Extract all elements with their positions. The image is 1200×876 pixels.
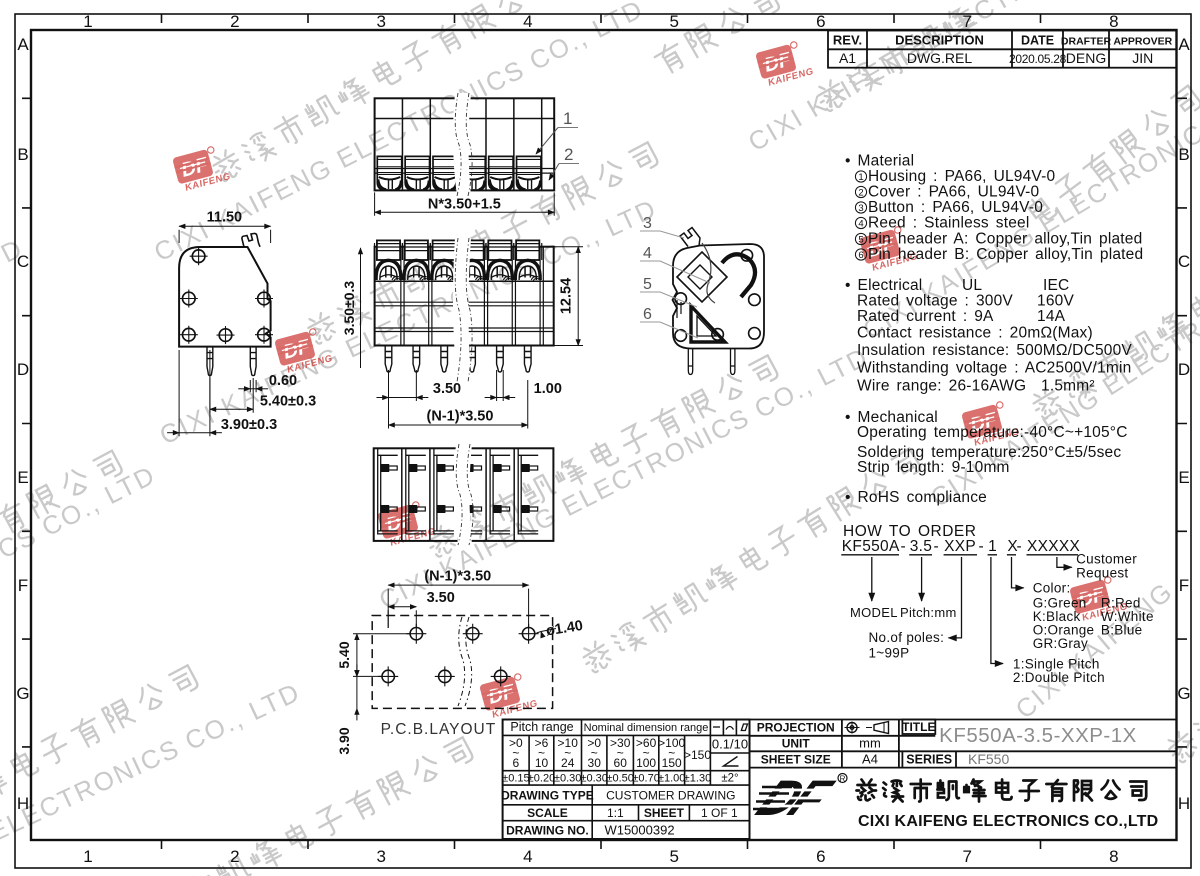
- svg-text:2020.05.28: 2020.05.28: [1009, 52, 1067, 66]
- svg-text:4: 4: [523, 847, 532, 866]
- svg-text:2: 2: [564, 145, 573, 164]
- svg-text:DRAFTER: DRAFTER: [1061, 36, 1112, 48]
- svg-text:6: 6: [643, 306, 652, 323]
- svg-text:UL: UL: [962, 277, 982, 294]
- svg-text:Insulation resistance: 500MΩ/D: Insulation resistance: 500MΩ/DC500V: [857, 342, 1132, 359]
- svg-text:1: 1: [83, 847, 92, 866]
- svg-text:Pin header A: Copper alloy,Tin: Pin header A: Copper alloy,Tin plated: [868, 231, 1142, 248]
- svg-text:2: 2: [858, 187, 863, 198]
- svg-text:1.00: 1.00: [534, 381, 562, 397]
- svg-text:5: 5: [669, 12, 678, 31]
- svg-text:B: B: [1178, 145, 1189, 164]
- svg-text:SCALE: SCALE: [527, 806, 568, 820]
- svg-text:2: 2: [230, 847, 239, 866]
- svg-text:mm: mm: [859, 735, 881, 750]
- svg-text:6: 6: [513, 756, 520, 770]
- svg-text:±1.30: ±1.30: [684, 773, 711, 785]
- svg-text:R: R: [840, 774, 846, 783]
- svg-text:H: H: [17, 794, 29, 813]
- svg-text:Housing : PA66, UL94V-0: Housing : PA66, UL94V-0: [868, 168, 1055, 185]
- svg-text:3.50±0.3: 3.50±0.3: [341, 281, 357, 336]
- svg-text:1:1: 1:1: [607, 806, 624, 820]
- svg-text:3: 3: [376, 847, 385, 866]
- svg-text:±0.70: ±0.70: [632, 773, 659, 785]
- svg-text:3: 3: [376, 12, 385, 31]
- svg-text:24: 24: [561, 756, 575, 770]
- svg-text:8: 8: [1109, 847, 1118, 866]
- svg-text:• RoHS compliance: • RoHS compliance: [845, 489, 987, 506]
- svg-text:11.50: 11.50: [207, 210, 243, 226]
- svg-text:150: 150: [662, 756, 682, 770]
- svg-text:Button : PA66, UL94V-0: Button : PA66, UL94V-0: [868, 199, 1043, 216]
- svg-text:3.50: 3.50: [433, 381, 461, 397]
- svg-text:3.50: 3.50: [427, 590, 455, 606]
- svg-text:7: 7: [962, 847, 971, 866]
- svg-text:0.60: 0.60: [269, 373, 297, 389]
- svg-text:MODEL: MODEL: [850, 605, 898, 620]
- svg-text:±0.30: ±0.30: [580, 773, 607, 785]
- svg-text:KF550A: KF550A: [842, 538, 900, 555]
- svg-text:60: 60: [614, 756, 628, 770]
- svg-text:DRAWING TYPE: DRAWING TYPE: [501, 789, 594, 803]
- svg-text:E: E: [17, 468, 28, 487]
- svg-text:DRAWING NO.: DRAWING NO.: [506, 824, 589, 838]
- svg-text:• Electrical: • Electrical: [845, 277, 922, 294]
- svg-text:SHEET: SHEET: [644, 806, 685, 820]
- svg-text:W15000392: W15000392: [604, 823, 674, 838]
- svg-text:160V: 160V: [1037, 293, 1074, 310]
- svg-text:6: 6: [816, 12, 825, 31]
- svg-text:1: 1: [83, 12, 92, 31]
- svg-text:3: 3: [643, 215, 652, 232]
- svg-text:XXP: XXP: [944, 538, 976, 555]
- svg-text:GR:Gray: GR:Gray: [1033, 636, 1088, 651]
- svg-text:-: -: [979, 538, 984, 555]
- svg-text:1: 1: [563, 109, 572, 128]
- svg-text:(N-1)*3.50: (N-1)*3.50: [427, 409, 494, 425]
- svg-text:Strip length: 9-10mm: Strip length: 9-10mm: [857, 459, 1010, 476]
- svg-text:1.5mm²: 1.5mm²: [1041, 378, 1095, 395]
- svg-text:A: A: [1178, 35, 1190, 54]
- svg-text:UNIT: UNIT: [782, 736, 811, 750]
- svg-text:IEC: IEC: [1043, 277, 1069, 294]
- svg-text:3: 3: [858, 203, 863, 214]
- svg-text:Rated current : 9A: Rated current : 9A: [857, 308, 994, 325]
- svg-text:C: C: [1178, 252, 1190, 271]
- svg-text:5: 5: [669, 847, 678, 866]
- svg-text:0.1/10: 0.1/10: [712, 737, 748, 752]
- svg-text:2: 2: [230, 12, 239, 31]
- svg-text:DATE: DATE: [1021, 34, 1054, 48]
- svg-text:(N-1)*3.50: (N-1)*3.50: [424, 568, 491, 584]
- svg-text:5.40±0.3: 5.40±0.3: [260, 394, 316, 410]
- svg-text:P.C.B.LAYOUT: P.C.B.LAYOUT: [381, 721, 497, 738]
- svg-text:SERIES: SERIES: [906, 753, 952, 767]
- svg-text:A4: A4: [862, 752, 878, 767]
- svg-text:CUSTOMER DRAWING: CUSTOMER DRAWING: [606, 789, 735, 803]
- svg-text:REV.: REV.: [833, 33, 862, 48]
- svg-text:D: D: [17, 360, 29, 379]
- svg-text:±0.50: ±0.50: [606, 773, 633, 785]
- svg-text:30: 30: [588, 756, 602, 770]
- svg-text:±1.00: ±1.00: [658, 773, 685, 785]
- svg-text:-: -: [901, 538, 906, 555]
- svg-text:TITLE: TITLE: [902, 720, 935, 734]
- svg-text:Withstanding voltage : AC2500V: Withstanding voltage : AC2500V/1min: [857, 360, 1131, 377]
- svg-text:DWG.REL: DWG.REL: [907, 50, 973, 66]
- svg-text:N*3.50+1.5: N*3.50+1.5: [428, 197, 501, 213]
- svg-text:H: H: [1178, 794, 1190, 813]
- svg-text:4: 4: [643, 245, 652, 262]
- svg-text:DESCRIPTION: DESCRIPTION: [895, 33, 984, 48]
- svg-text:Cover : PA66, UL94V-0: Cover : PA66, UL94V-0: [868, 184, 1040, 201]
- svg-text:APPROVER: APPROVER: [1113, 36, 1172, 48]
- svg-text:Pin header B: Copper alloy,Tin: Pin header B: Copper alloy,Tin plated: [868, 246, 1143, 263]
- svg-text:6: 6: [858, 250, 863, 261]
- svg-text:JIN: JIN: [1132, 50, 1153, 66]
- svg-text:A: A: [17, 35, 29, 54]
- svg-text:4: 4: [858, 218, 863, 229]
- svg-text:F: F: [18, 576, 28, 595]
- svg-text:±2°: ±2°: [721, 773, 738, 785]
- svg-text:5: 5: [858, 234, 863, 245]
- svg-text:XXXXX: XXXXX: [1027, 538, 1081, 555]
- svg-text:5: 5: [643, 276, 652, 293]
- svg-text:±0.15: ±0.15: [502, 773, 529, 785]
- svg-text:B:Blue: B:Blue: [1101, 623, 1143, 638]
- svg-text:100: 100: [636, 756, 656, 770]
- svg-text:-: -: [934, 538, 939, 555]
- svg-text:Rated voltage : 300V: Rated voltage : 300V: [857, 293, 1013, 310]
- svg-text:3.5: 3.5: [910, 538, 932, 555]
- svg-text:3.90±0.3: 3.90±0.3: [221, 417, 277, 433]
- svg-text:1: 1: [988, 538, 997, 555]
- svg-text:6: 6: [816, 847, 825, 866]
- svg-text:Pitch:mm: Pitch:mm: [900, 605, 957, 620]
- svg-text:KF550: KF550: [968, 751, 1009, 767]
- svg-text:8: 8: [1109, 12, 1118, 31]
- svg-text:PROJECTION: PROJECTION: [757, 721, 835, 735]
- svg-text:1~99P: 1~99P: [869, 646, 910, 661]
- svg-text:E: E: [1178, 468, 1189, 487]
- svg-text:10: 10: [535, 756, 549, 770]
- svg-text:No.of poles:: No.of poles:: [869, 630, 945, 645]
- svg-text:D: D: [1178, 360, 1190, 379]
- svg-text:DENG: DENG: [1066, 50, 1106, 66]
- svg-text:7: 7: [962, 12, 971, 31]
- svg-text:Wire range: 26-16AWG: Wire range: 26-16AWG: [857, 378, 1026, 395]
- svg-text:Color:: Color:: [1033, 581, 1071, 596]
- svg-text:1 OF 1: 1 OF 1: [701, 806, 738, 820]
- svg-text:B: B: [17, 145, 28, 164]
- svg-text:Customer: Customer: [1076, 552, 1137, 567]
- svg-text:1: 1: [858, 172, 863, 183]
- svg-text:Reed : Stainless steel: Reed : Stainless steel: [868, 215, 1030, 232]
- svg-text:KF550A-3.5-XXP-1X: KF550A-3.5-XXP-1X: [939, 724, 1137, 747]
- svg-text:3.90: 3.90: [336, 727, 352, 754]
- svg-text:SHEET SIZE: SHEET SIZE: [761, 753, 831, 767]
- svg-text:Contact resistance : 20mΩ(Max): Contact resistance : 20mΩ(Max): [857, 325, 1093, 342]
- svg-text:Operating temperature:-40°C~+1: Operating temperature:-40°C~+105°C: [857, 424, 1128, 441]
- svg-text:CIXI KAIFENG ELECTRONICS CO.,L: CIXI KAIFENG ELECTRONICS CO.,LTD: [858, 813, 1158, 830]
- svg-text:14A: 14A: [1037, 308, 1066, 325]
- svg-text:F: F: [1179, 576, 1189, 595]
- svg-text:G: G: [1177, 684, 1190, 703]
- svg-text:G: G: [16, 684, 29, 703]
- svg-text:12.54: 12.54: [558, 278, 574, 314]
- svg-text:Nominal dimension range: Nominal dimension range: [584, 722, 709, 734]
- svg-text:• Material: • Material: [845, 153, 914, 170]
- svg-text:-: -: [1017, 538, 1022, 555]
- svg-text:5.40: 5.40: [336, 641, 352, 668]
- svg-text:2:Double Pitch: 2:Double Pitch: [1013, 670, 1105, 685]
- svg-text:A1: A1: [839, 50, 856, 66]
- svg-text:±0.30: ±0.30: [554, 773, 581, 785]
- svg-text:C: C: [17, 252, 29, 271]
- svg-text:±0.20: ±0.20: [528, 773, 555, 785]
- svg-text:4: 4: [523, 12, 532, 31]
- svg-text:Request: Request: [1076, 566, 1128, 581]
- svg-text:>150: >150: [684, 748, 711, 762]
- svg-text:Pitch range: Pitch range: [510, 720, 573, 734]
